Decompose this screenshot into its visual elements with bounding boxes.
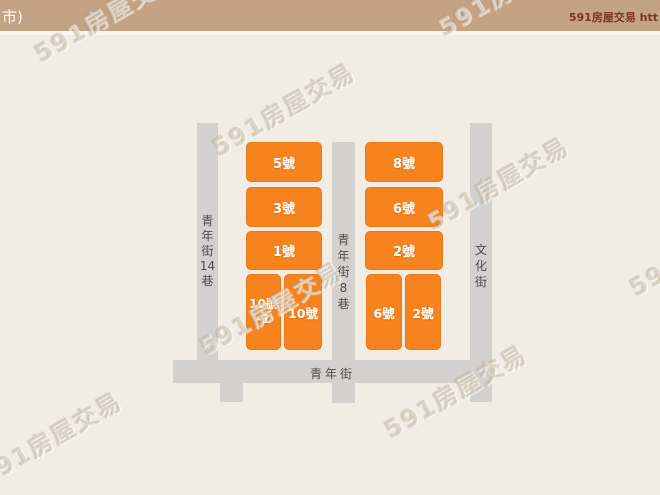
- watermark: 591房屋交易: [377, 335, 533, 445]
- building-lot-no10-1[interactable]: 10號 -1: [246, 274, 281, 350]
- street-youth-st-lane14-stub: [220, 383, 243, 402]
- building-lot-no6[interactable]: 6號: [365, 187, 443, 227]
- building-lot-no5[interactable]: 5號: [246, 142, 322, 182]
- street-label-youth-st-lane8: 青 年 街 8 巷: [332, 232, 355, 312]
- street-label-wenhua-st: 文 化 街: [470, 242, 492, 290]
- building-lot-no6-south[interactable]: 6號: [366, 274, 402, 350]
- watermark: 591房屋交易: [0, 382, 128, 492]
- header-title-fragment: 市): [2, 6, 23, 27]
- building-lot-no1[interactable]: 1號: [246, 231, 322, 270]
- building-lot-no2[interactable]: 2號: [365, 231, 443, 270]
- street-label-youth-st: 青年街: [173, 365, 492, 382]
- building-lot-no10[interactable]: 10號: [284, 274, 322, 350]
- building-lot-no8[interactable]: 8號: [365, 142, 443, 182]
- building-lot-no2-south[interactable]: 2號: [405, 274, 441, 350]
- header-divider: [0, 31, 660, 35]
- building-lot-no3[interactable]: 3號: [246, 187, 322, 227]
- header-site-url: 591房屋交易 htt: [569, 9, 658, 25]
- watermark: 591房屋交易: [622, 193, 660, 303]
- street-label-youth-st-lane14: 青 年 街 14 巷: [197, 214, 218, 289]
- header-bar: 市) 591房屋交易 htt: [0, 0, 660, 31]
